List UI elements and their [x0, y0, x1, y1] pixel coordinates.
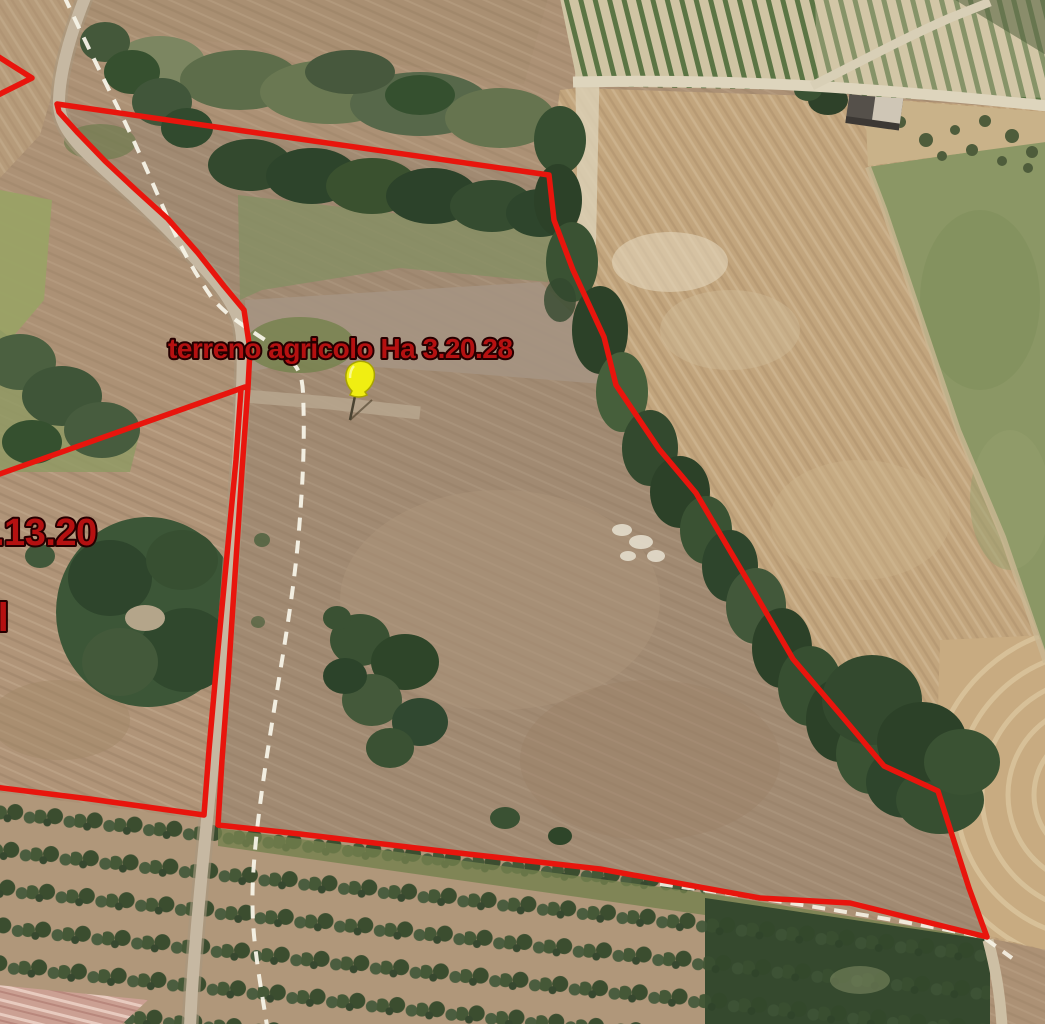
- parcel-label-left-partial: .13.20: [0, 512, 97, 554]
- parcel-label-edge-fragment: il: [0, 596, 8, 640]
- satellite-map: terreno agricolo Ha 3.20.28 .13.20 il: [0, 0, 1045, 1024]
- map-canvas: terreno agricolo Ha 3.20.28 .13.20 il: [0, 0, 1045, 1024]
- parcel-label-main: terreno agricolo Ha 3.20.28: [168, 333, 512, 364]
